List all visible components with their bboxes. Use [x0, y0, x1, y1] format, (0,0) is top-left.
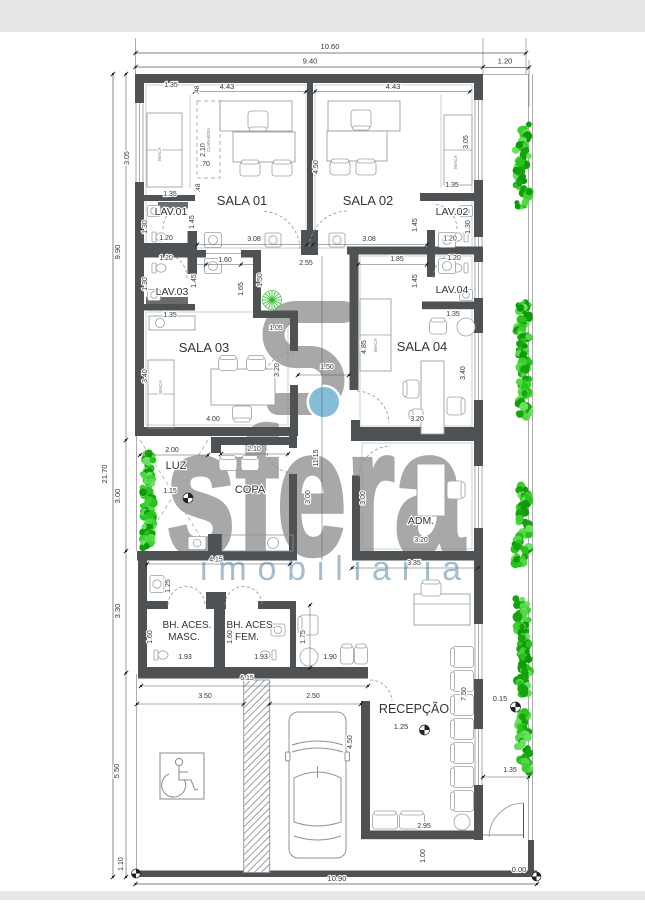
- svg-text:1.35: 1.35: [163, 191, 177, 198]
- svg-text:1.20: 1.20: [159, 255, 173, 262]
- svg-text:1.45: 1.45: [412, 218, 419, 232]
- svg-text:1.25: 1.25: [394, 722, 408, 731]
- svg-text:LAV.04: LAV.04: [436, 284, 469, 296]
- svg-text:1.30: 1.30: [142, 277, 149, 291]
- svg-text:3.08: 3.08: [362, 236, 376, 243]
- svg-text:1.30: 1.30: [142, 220, 149, 234]
- svg-text:3.00: 3.00: [360, 491, 367, 505]
- svg-text:4.85: 4.85: [361, 340, 368, 354]
- svg-text:3.00: 3.00: [305, 490, 312, 504]
- svg-text:3.08: 3.08: [247, 236, 261, 243]
- svg-text:2.10: 2.10: [247, 446, 261, 453]
- svg-text:9.40: 9.40: [303, 57, 318, 66]
- svg-text:SALA 02: SALA 02: [343, 193, 394, 208]
- svg-text:1.20: 1.20: [159, 235, 173, 242]
- svg-text:7.50: 7.50: [461, 687, 468, 701]
- svg-text:9.90: 9.90: [113, 245, 122, 260]
- svg-text:3.00: 3.00: [113, 489, 122, 504]
- svg-text:4.50: 4.50: [347, 735, 354, 749]
- svg-text:21.70: 21.70: [100, 464, 109, 483]
- svg-text:0.15: 0.15: [493, 694, 507, 703]
- svg-text:4.00: 4.00: [206, 416, 220, 423]
- svg-text:LAV.02: LAV.02: [436, 206, 469, 218]
- svg-text:LAV.03: LAV.03: [156, 286, 189, 298]
- svg-text:1.60: 1.60: [218, 257, 232, 264]
- svg-text:BH. ACES.: BH. ACES.: [163, 620, 212, 631]
- svg-text:4.50: 4.50: [313, 160, 320, 174]
- svg-text:1.93: 1.93: [254, 654, 268, 661]
- svg-text:1.90: 1.90: [323, 654, 337, 661]
- svg-text:1.30: 1.30: [465, 220, 472, 234]
- svg-text:MASC.: MASC.: [168, 632, 200, 643]
- svg-text:1.20: 1.20: [443, 236, 457, 243]
- svg-text:1.35: 1.35: [503, 767, 517, 774]
- svg-text:.70: .70: [200, 161, 210, 168]
- svg-text:MACA: MACA: [157, 146, 163, 161]
- svg-text:CLARABOIA: CLARABOIA: [206, 128, 211, 152]
- svg-text:3.05: 3.05: [124, 151, 131, 165]
- svg-text:1.93: 1.93: [178, 654, 192, 661]
- svg-text:MACA: MACA: [373, 337, 379, 352]
- svg-text:3.50: 3.50: [198, 693, 212, 700]
- svg-text:MACA: MACA: [453, 154, 459, 169]
- svg-text:.48: .48: [195, 183, 202, 192]
- svg-text:10.90: 10.90: [327, 874, 346, 883]
- svg-text:2.50: 2.50: [306, 693, 320, 700]
- svg-text:3.35: 3.35: [407, 560, 421, 567]
- svg-text:3.20: 3.20: [274, 363, 281, 377]
- svg-text:SALA 03: SALA 03: [179, 340, 230, 355]
- svg-text:SALA 01: SALA 01: [217, 193, 268, 208]
- svg-text:1.35: 1.35: [164, 82, 178, 89]
- svg-text:1.35: 1.35: [446, 311, 460, 318]
- svg-text:1.20: 1.20: [498, 57, 513, 66]
- svg-text:1.85: 1.85: [390, 256, 404, 263]
- svg-text:4.43: 4.43: [220, 82, 235, 91]
- svg-text:.48: .48: [194, 85, 201, 94]
- svg-text:3.20: 3.20: [414, 537, 428, 544]
- svg-text:2.95: 2.95: [417, 823, 431, 830]
- svg-text:4.15: 4.15: [209, 557, 223, 564]
- svg-text:1.45: 1.45: [191, 274, 198, 288]
- svg-text:2.00: 2.00: [165, 447, 179, 454]
- svg-text:ADM.: ADM.: [408, 515, 434, 527]
- svg-text:1.00: 1.00: [420, 849, 427, 863]
- svg-text:RECEPÇÃO: RECEPÇÃO: [379, 702, 449, 716]
- svg-text:1.35: 1.35: [445, 182, 459, 189]
- svg-text:3.05: 3.05: [463, 135, 470, 149]
- svg-text:1.45: 1.45: [189, 215, 196, 229]
- svg-text:1.50: 1.50: [257, 273, 264, 287]
- svg-text:10.60: 10.60: [320, 42, 339, 51]
- svg-text:BH. ACES.: BH. ACES.: [227, 620, 276, 631]
- svg-text:0.00: 0.00: [512, 865, 526, 874]
- svg-text:SALA 04: SALA 04: [397, 339, 448, 354]
- svg-text:6.15: 6.15: [240, 675, 254, 682]
- svg-text:1.05: 1.05: [269, 325, 283, 332]
- svg-text:1.65: 1.65: [238, 282, 245, 296]
- svg-text:1.45: 1.45: [412, 274, 419, 288]
- svg-text:5.50: 5.50: [112, 764, 121, 779]
- svg-text:1.20: 1.20: [447, 255, 461, 262]
- svg-text:1.60: 1.60: [147, 630, 154, 644]
- svg-text:11.15: 11.15: [313, 449, 320, 466]
- svg-text:3.20: 3.20: [410, 416, 424, 423]
- svg-text:MACA: MACA: [158, 379, 164, 394]
- svg-text:4.43: 4.43: [386, 82, 401, 91]
- svg-text:COPA: COPA: [235, 484, 266, 496]
- svg-text:3.30: 3.30: [113, 604, 122, 619]
- svg-text:1.75: 1.75: [300, 630, 307, 644]
- svg-text:LUZ: LUZ: [166, 460, 187, 472]
- svg-text:3.40: 3.40: [460, 366, 467, 380]
- svg-text:1.35: 1.35: [163, 312, 177, 319]
- svg-text:1.25: 1.25: [165, 579, 172, 593]
- svg-text:3.40: 3.40: [142, 369, 149, 383]
- svg-text:2.55: 2.55: [299, 260, 313, 267]
- svg-text:1.60: 1.60: [227, 630, 234, 644]
- svg-text:1.15: 1.15: [163, 488, 177, 495]
- svg-text:1.10: 1.10: [118, 857, 125, 871]
- svg-text:LAV.01: LAV.01: [155, 206, 188, 218]
- svg-text:FEM.: FEM.: [235, 632, 259, 643]
